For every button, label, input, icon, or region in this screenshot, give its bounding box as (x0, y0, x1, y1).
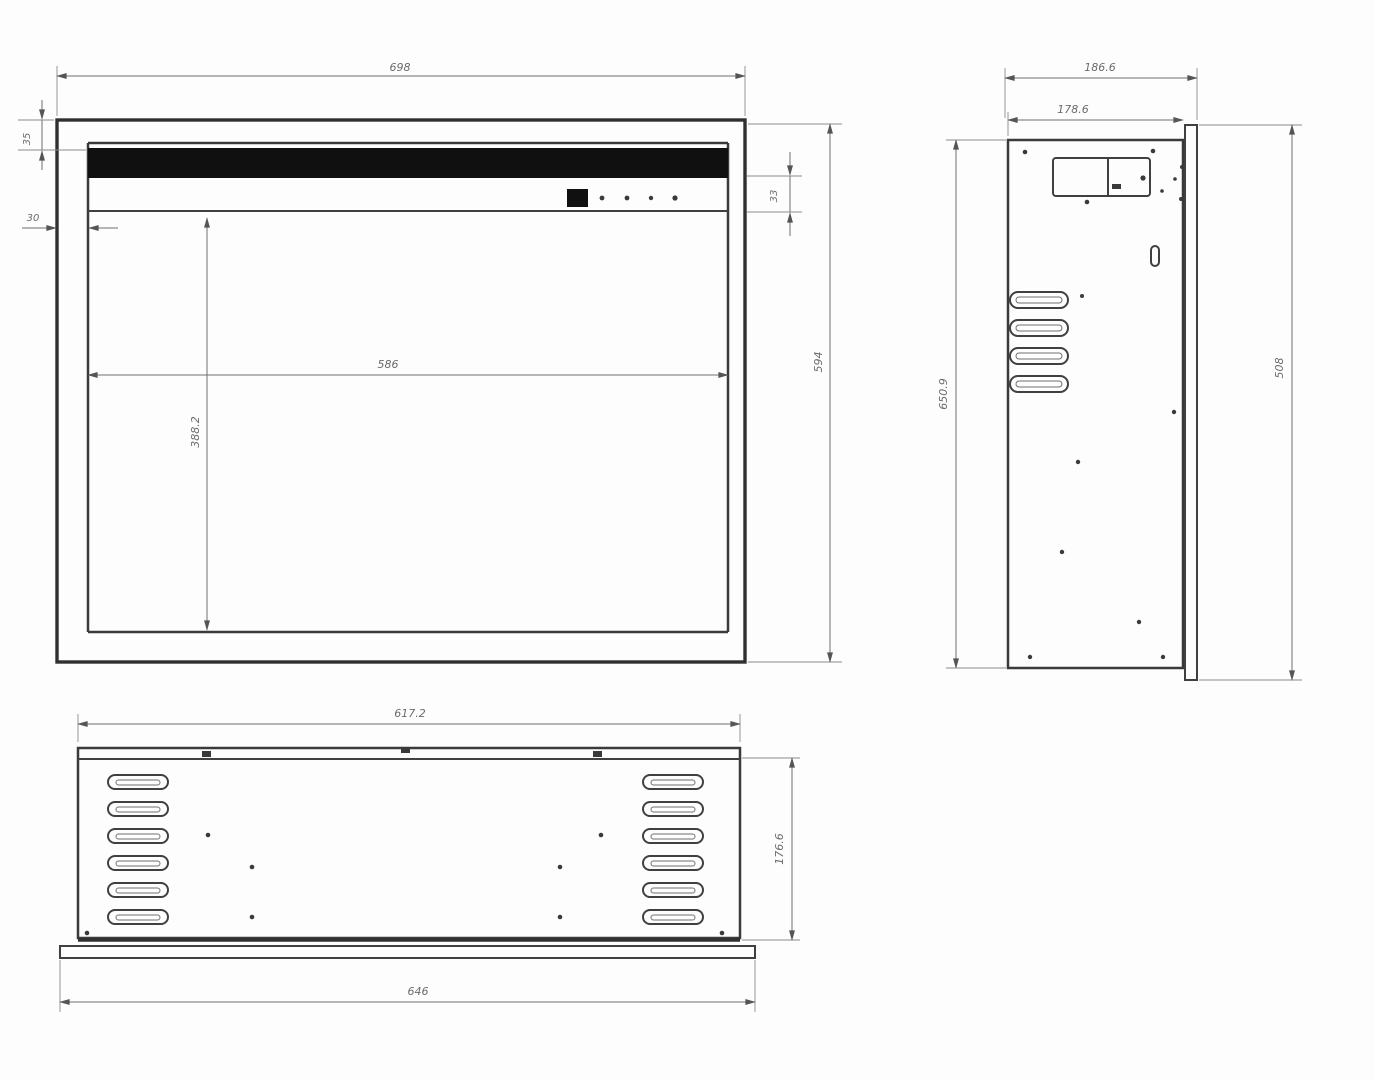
front-outer-frame (57, 120, 745, 662)
side-front-flange (1185, 125, 1197, 680)
heater-outlet-strip (88, 148, 728, 178)
dim-front-control-band: 33 (769, 190, 780, 203)
control-buttons (600, 195, 678, 200)
side-view: 186.6 178.6 (937, 61, 1302, 680)
dim-bottom-body-width: 617.2 (394, 707, 426, 720)
side-slot (1151, 246, 1159, 266)
bottom-body (78, 748, 740, 938)
dim-front-opening-width: 586 (378, 358, 399, 371)
dim-front-overall-height: 594 (812, 352, 825, 373)
side-top-cutout (1053, 158, 1150, 196)
drawing-canvas: 698 586 388.2 35 30 (0, 0, 1375, 1080)
dim-side-overall-depth: 186.6 (1084, 61, 1116, 74)
dim-bottom-depth: 176.6 (773, 833, 786, 865)
dim-front-top-frame: 35 (22, 133, 33, 146)
control-display (567, 189, 588, 207)
dim-front-side-frame: 30 (27, 213, 40, 224)
technical-drawing: 698 586 388.2 35 30 (0, 0, 1375, 1080)
dim-side-body-depth: 178.6 (1057, 103, 1089, 116)
dim-front-overall-width: 698 (390, 61, 411, 74)
side-louvers (1010, 292, 1068, 392)
side-body (1008, 140, 1183, 668)
bottom-louvers-left (108, 775, 168, 924)
bottom-louvers-right (643, 775, 703, 924)
dim-side-overall-height: 508 (1273, 358, 1286, 379)
dim-front-opening-height: 388.2 (189, 416, 202, 448)
dim-bottom-overall-width: 646 (408, 985, 429, 998)
dim-side-body-height: 650.9 (937, 378, 950, 410)
bottom-flange (60, 946, 755, 958)
front-view: 698 586 388.2 35 30 (18, 61, 842, 662)
bottom-view: 617.2 (60, 707, 800, 1012)
